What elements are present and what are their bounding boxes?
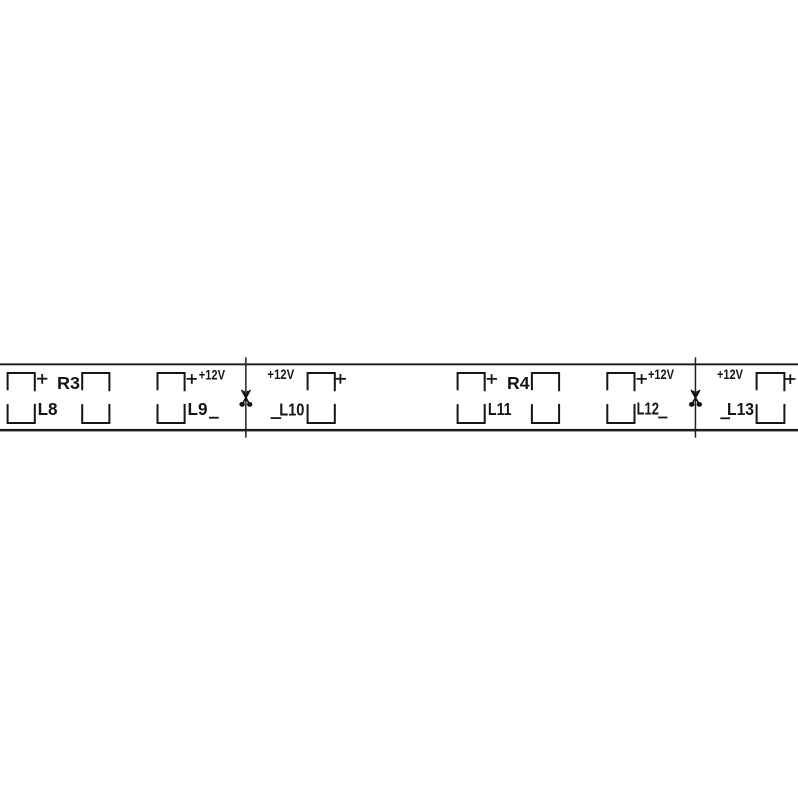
svg-text:+12V: +12V [267,367,294,382]
svg-text:+12V: +12V [199,368,225,383]
svg-text:L10: L10 [279,399,304,419]
svg-text:L9: L9 [188,399,208,419]
svg-text:R3: R3 [57,373,80,393]
svg-text:+12V: +12V [648,367,674,382]
svg-text:L8: L8 [38,399,58,419]
svg-text:L13: L13 [727,399,754,419]
svg-text:L12: L12 [637,399,660,419]
svg-text:+12V: +12V [717,367,743,382]
svg-text:R4: R4 [507,373,530,393]
svg-text:L11: L11 [488,399,512,419]
